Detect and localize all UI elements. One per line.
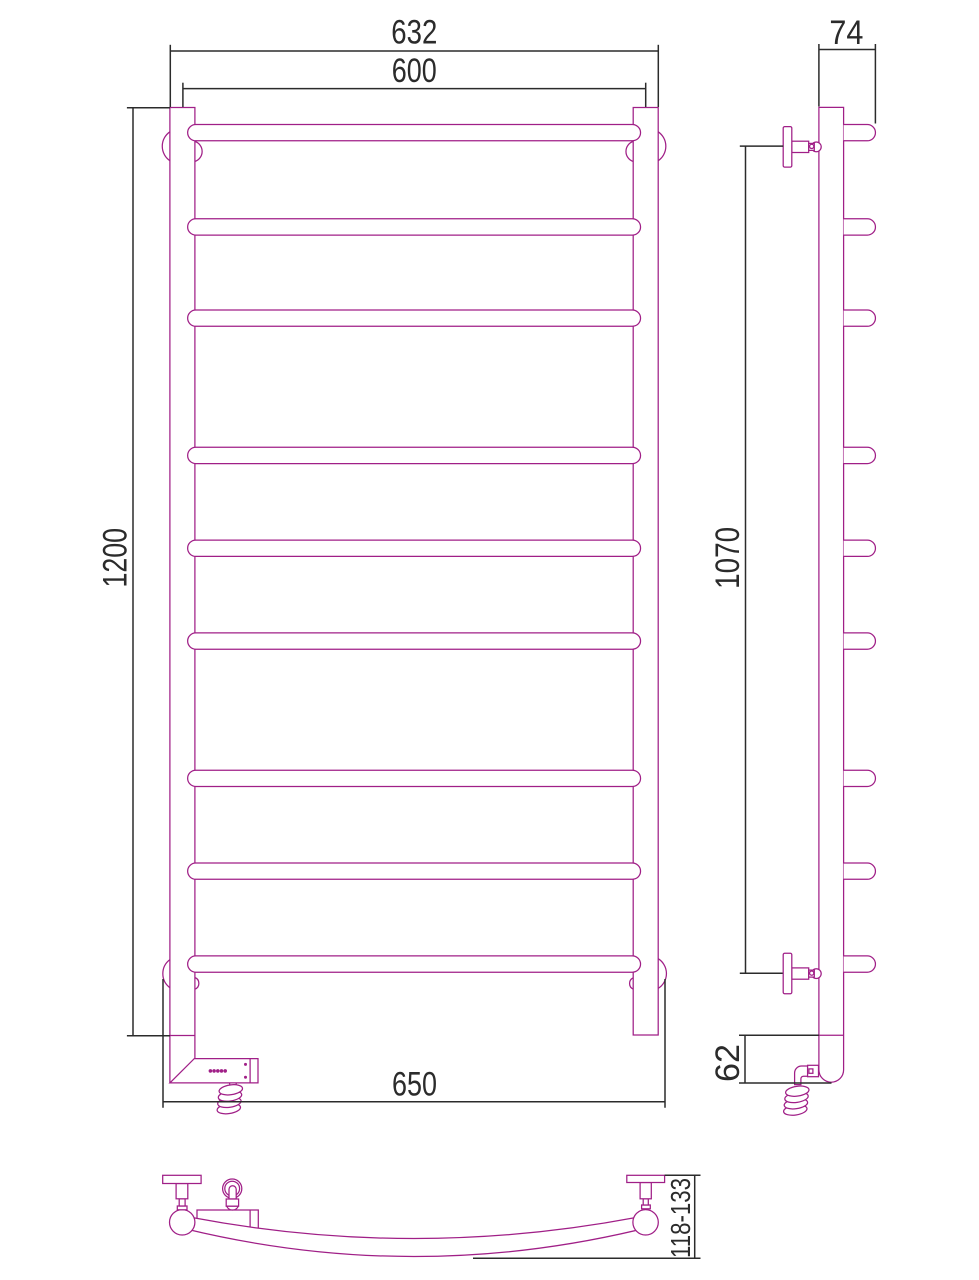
svg-text:632: 632	[391, 13, 437, 51]
svg-text:62: 62	[709, 1044, 747, 1082]
svg-text:650: 650	[392, 1065, 437, 1103]
svg-text:600: 600	[392, 52, 437, 90]
svg-text:74: 74	[829, 14, 863, 52]
svg-text:1200: 1200	[97, 528, 135, 588]
svg-text:1070: 1070	[709, 527, 747, 589]
svg-text:118-133: 118-133	[665, 1178, 696, 1258]
